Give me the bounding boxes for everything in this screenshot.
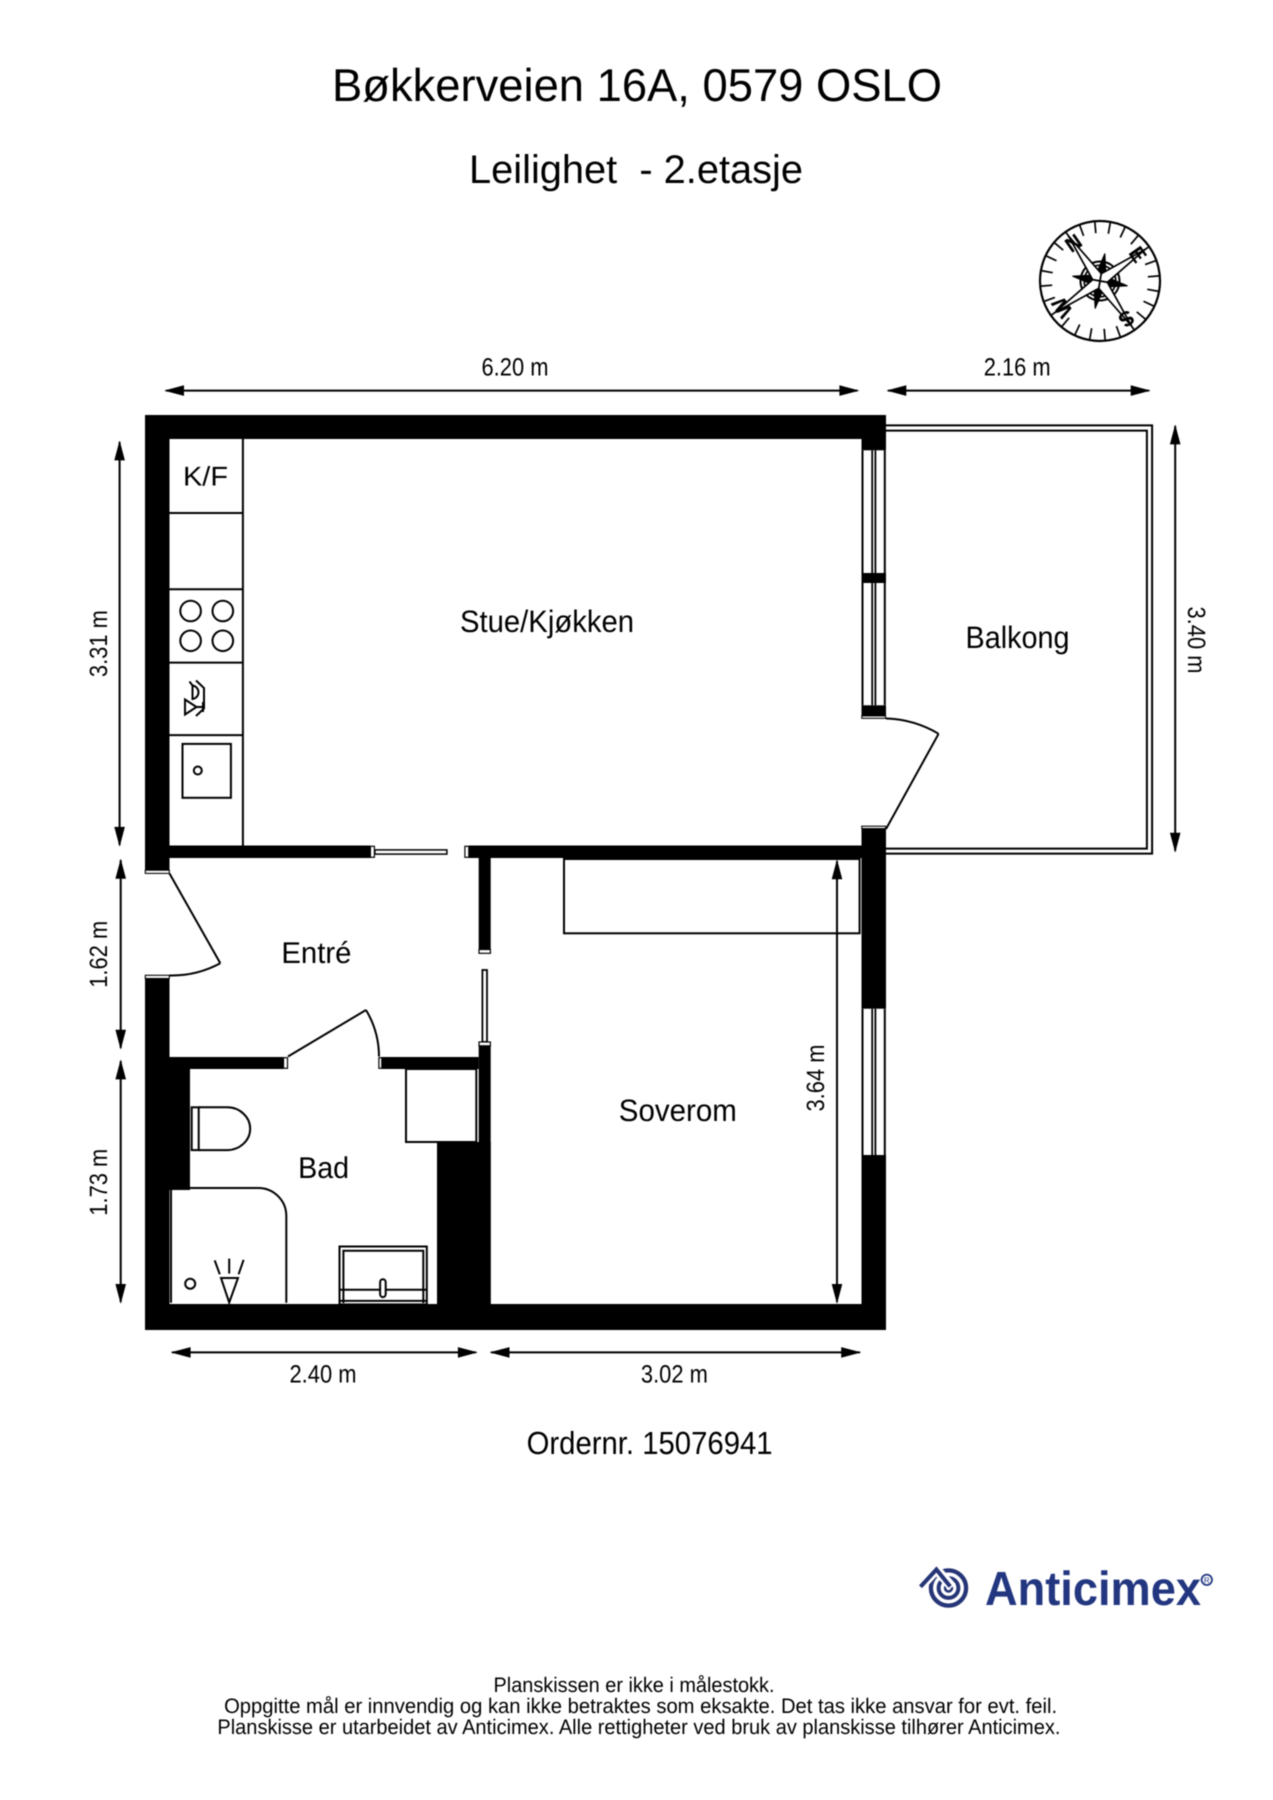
svg-text:3.31 m: 3.31 m	[85, 610, 113, 677]
svg-text:3.02 m: 3.02 m	[641, 1361, 708, 1389]
svg-text:Bøkkerveien 16A, 0579 OSLO: Bøkkerveien 16A, 0579 OSLO	[332, 59, 942, 111]
svg-text:Soverom: Soverom	[619, 1093, 737, 1128]
svg-text:2.40 m: 2.40 m	[290, 1361, 357, 1389]
svg-text:2.16 m: 2.16 m	[984, 354, 1051, 382]
svg-text:Anticimex: Anticimex	[985, 1563, 1201, 1616]
svg-text:3.64 m: 3.64 m	[802, 1045, 830, 1112]
svg-text:Stue/Kjøkken: Stue/Kjøkken	[460, 604, 634, 639]
svg-text:Oppgitte mål er innvendig og k: Oppgitte mål er innvendig og kan ikke be…	[224, 1695, 1057, 1718]
svg-text:Leilighet - 2.etasje: Leilighet - 2.etasje	[469, 148, 803, 192]
svg-text:K/F: K/F	[183, 462, 228, 492]
svg-text:Planskissen er ikke i målestok: Planskissen er ikke i målestokk.	[494, 1674, 775, 1697]
svg-text:Ordernr. 15076941: Ordernr. 15076941	[527, 1425, 773, 1461]
svg-text:1.73 m: 1.73 m	[85, 1149, 113, 1216]
svg-text:3.40 m: 3.40 m	[1182, 607, 1210, 674]
svg-text:Bad: Bad	[298, 1152, 349, 1185]
svg-text:Planskisse er utarbeidet av An: Planskisse er utarbeidet av Anticimex. A…	[217, 1716, 1060, 1739]
svg-text:Entré: Entré	[281, 937, 351, 970]
svg-text:1.62 m: 1.62 m	[85, 921, 113, 988]
svg-text:Balkong: Balkong	[966, 620, 1070, 655]
svg-text:6.20 m: 6.20 m	[482, 354, 549, 382]
svg-text:R: R	[1204, 1576, 1210, 1585]
